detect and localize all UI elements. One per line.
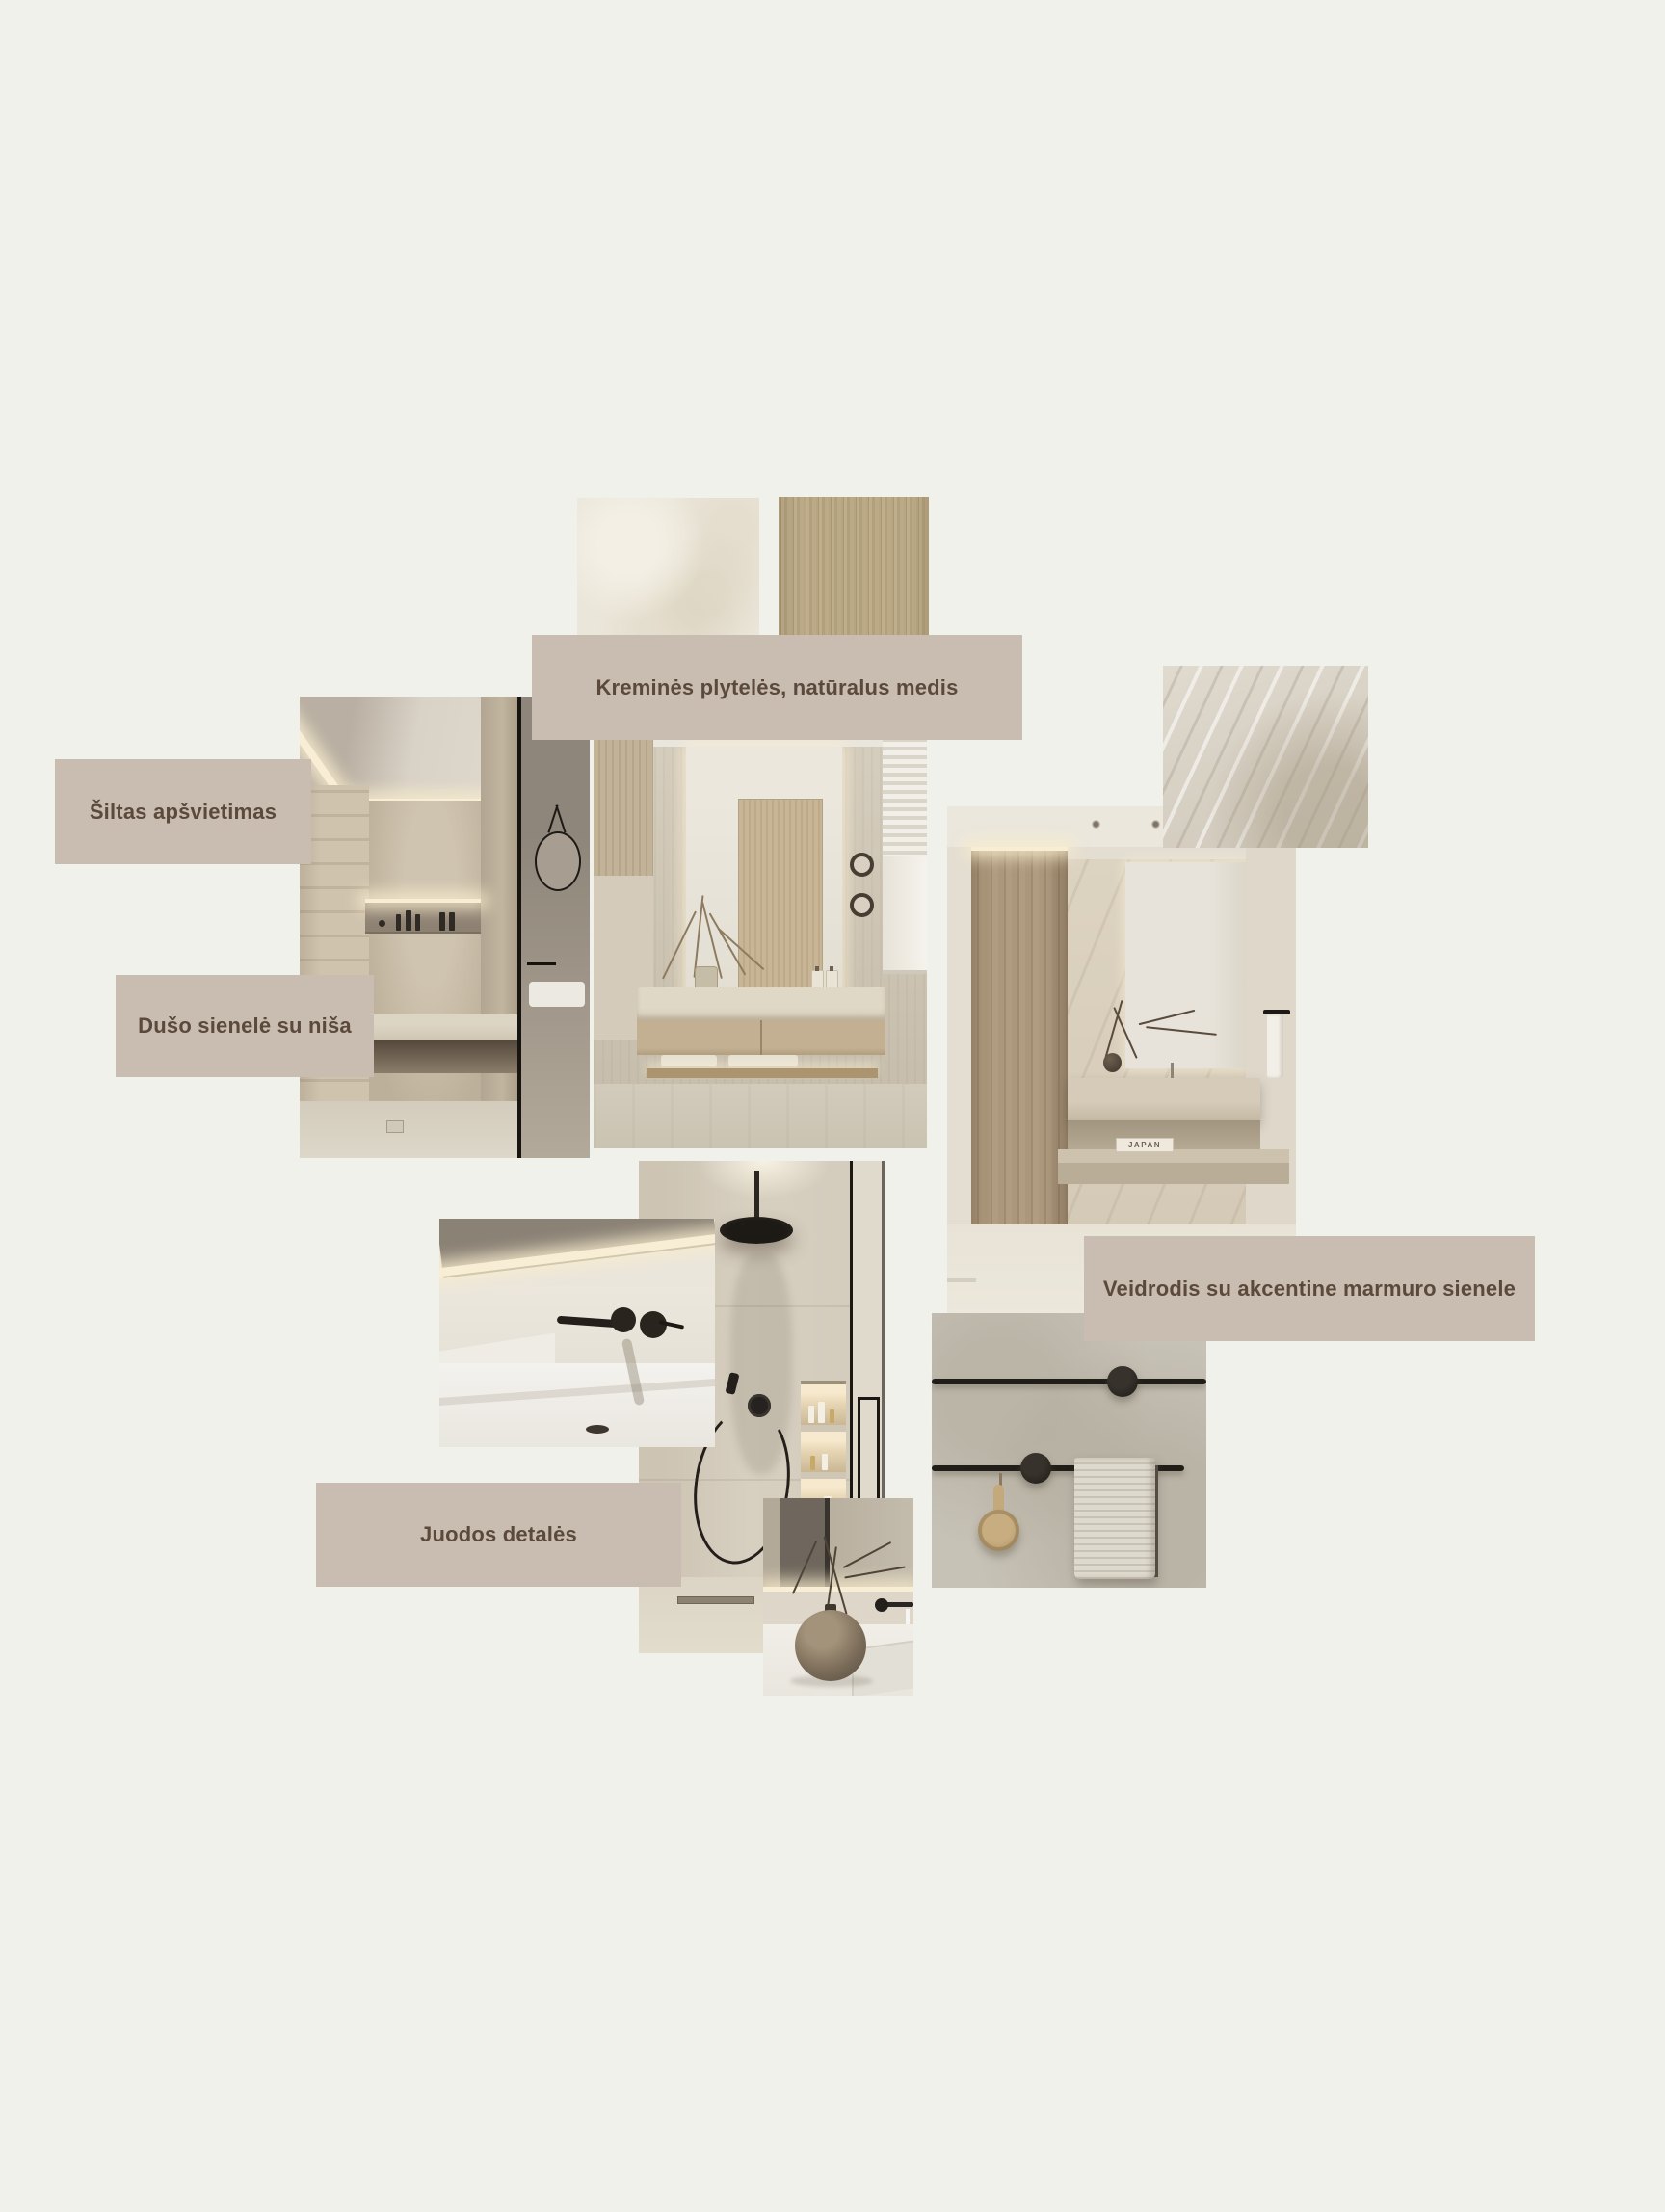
white-sink — [439, 1363, 715, 1447]
photo-sphere-vase — [763, 1498, 913, 1696]
door-handle-frame — [858, 1397, 880, 1511]
wooden-body-brush — [978, 1510, 1019, 1551]
glass-partition — [519, 697, 590, 1158]
niche-bottle — [406, 910, 411, 931]
drain-cover — [586, 1425, 609, 1434]
lower-wood-shelf — [647, 1068, 878, 1078]
rail-disc-mount — [1107, 1366, 1138, 1397]
niche-bottle — [415, 914, 420, 931]
photo-black-towel-rails — [932, 1313, 1206, 1588]
moodboard-canvas: JAPAN — [0, 0, 1665, 2212]
black-rain-shower-head — [720, 1217, 793, 1244]
wood-column — [971, 847, 1068, 1224]
japan-book: JAPAN — [1116, 1138, 1174, 1152]
rail-disc-mount — [1020, 1453, 1051, 1484]
wood-cabinet — [594, 729, 653, 876]
bench-front — [1058, 1163, 1289, 1184]
photo-warm-shower — [300, 697, 590, 1158]
bottle — [822, 1454, 828, 1470]
mirror-door-reflection — [738, 799, 823, 995]
bottle — [830, 1409, 834, 1423]
shower-niche — [365, 901, 481, 933]
ceiling-spotlight — [1092, 820, 1100, 829]
faucet-escutcheon — [875, 1598, 888, 1612]
shelf-divider — [801, 1472, 846, 1479]
black-wall-faucet — [885, 1602, 913, 1607]
baseboard — [947, 1278, 976, 1282]
folded-towels — [661, 1055, 717, 1069]
ceiling-spotlight — [1151, 820, 1160, 829]
stone-bench — [353, 1014, 536, 1040]
stone-vanity-top — [637, 987, 885, 1020]
dark-reflection-panel — [780, 1498, 827, 1588]
white-hand-towel — [1267, 1014, 1283, 1078]
label-mirror-marble-text: Veidrodis su akcentine marmuro sienele — [1103, 1277, 1516, 1302]
linear-drain — [677, 1596, 754, 1604]
niche-bottle — [449, 912, 455, 931]
round-sconce — [850, 853, 874, 877]
round-sconce — [850, 893, 874, 917]
photo-black-faucet-closeup — [439, 1219, 715, 1447]
niche-led-strip — [365, 899, 481, 903]
upper-black-rail — [932, 1379, 1206, 1384]
niche-bottle — [396, 914, 401, 931]
photo-vanity-room — [594, 729, 927, 1148]
faucet — [1171, 1063, 1174, 1078]
label-cream-tiles: Kreminės plytelės, natūralus medis — [532, 635, 1022, 740]
label-mirror-marble: Veidrodis su akcentine marmuro sienele — [1084, 1236, 1535, 1341]
black-mixer-dial — [748, 1394, 771, 1417]
glass-frame — [517, 697, 521, 1158]
folded-towels — [728, 1055, 798, 1069]
label-black-details-text: Juodos detalės — [420, 1522, 577, 1547]
floor-drain — [386, 1120, 404, 1133]
black-faucet-reflection — [527, 962, 556, 965]
ribbed-cream-towel — [1074, 1458, 1155, 1579]
label-cream-tiles-text: Kreminės plytelės, natūralus medis — [595, 675, 958, 700]
bench-shadow — [353, 1040, 536, 1073]
bottle — [818, 1402, 825, 1423]
dark-vase — [1103, 1053, 1122, 1072]
sink-reflection — [529, 982, 585, 1007]
ceiling-light-glow — [697, 1161, 832, 1199]
niche-shelf — [365, 932, 481, 934]
wood-floor — [594, 1084, 927, 1148]
bottle — [810, 1456, 815, 1470]
shelf-divider — [801, 1425, 846, 1432]
shower-arm — [754, 1171, 759, 1224]
japan-book-title: JAPAN — [1128, 1141, 1161, 1149]
window-blinds — [883, 729, 927, 856]
niche-bottle — [379, 920, 385, 927]
large-mirror — [1125, 862, 1246, 1068]
natural-wood-swatch — [779, 497, 929, 652]
stone-bench — [1058, 1149, 1289, 1163]
led-strip — [971, 847, 1068, 851]
label-warm-lighting: Šiltas apšvietimas — [55, 759, 311, 864]
label-warm-lighting-text: Šiltas apšvietimas — [90, 800, 277, 825]
label-black-details: Juodos detalės — [316, 1483, 681, 1587]
sphere-vase — [795, 1610, 866, 1681]
window-sill — [883, 970, 927, 974]
marble-vanity — [1068, 1078, 1260, 1120]
bottle — [808, 1406, 814, 1423]
cream-tile-swatch — [577, 498, 759, 652]
label-shower-niche-text: Dušo sienelė su niša — [138, 1014, 352, 1039]
round-mirror-reflection — [535, 831, 581, 891]
spout-escutcheon — [611, 1307, 636, 1332]
marble-swatch — [1163, 666, 1368, 848]
drawer-seam — [760, 1020, 762, 1055]
label-shower-niche: Dušo sienelė su niša — [116, 975, 374, 1077]
niche-bottle — [439, 912, 445, 931]
